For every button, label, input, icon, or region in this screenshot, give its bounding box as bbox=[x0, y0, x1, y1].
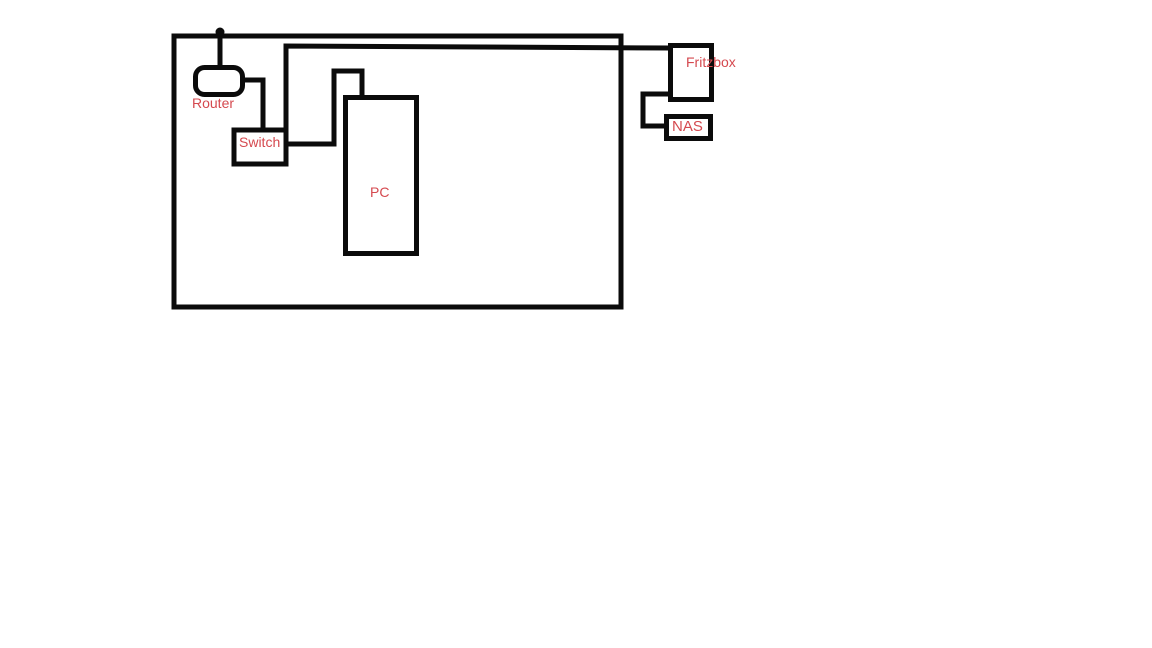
router-antenna-dot bbox=[216, 28, 225, 37]
edge-router-switch bbox=[243, 80, 263, 131]
router-shape bbox=[196, 68, 243, 95]
edge-switch-pc bbox=[286, 71, 362, 144]
pc-shape bbox=[346, 98, 417, 254]
router-label: Router bbox=[192, 96, 234, 111]
paint-canvas: Router Switch PC Fritzbox NAS bbox=[0, 0, 1152, 648]
fritzbox-label: Fritzbox bbox=[686, 55, 736, 70]
network-sketch bbox=[0, 0, 1152, 648]
nas-label: NAS bbox=[672, 119, 703, 134]
pc-label: PC bbox=[370, 185, 389, 200]
switch-label: Switch bbox=[239, 135, 280, 150]
